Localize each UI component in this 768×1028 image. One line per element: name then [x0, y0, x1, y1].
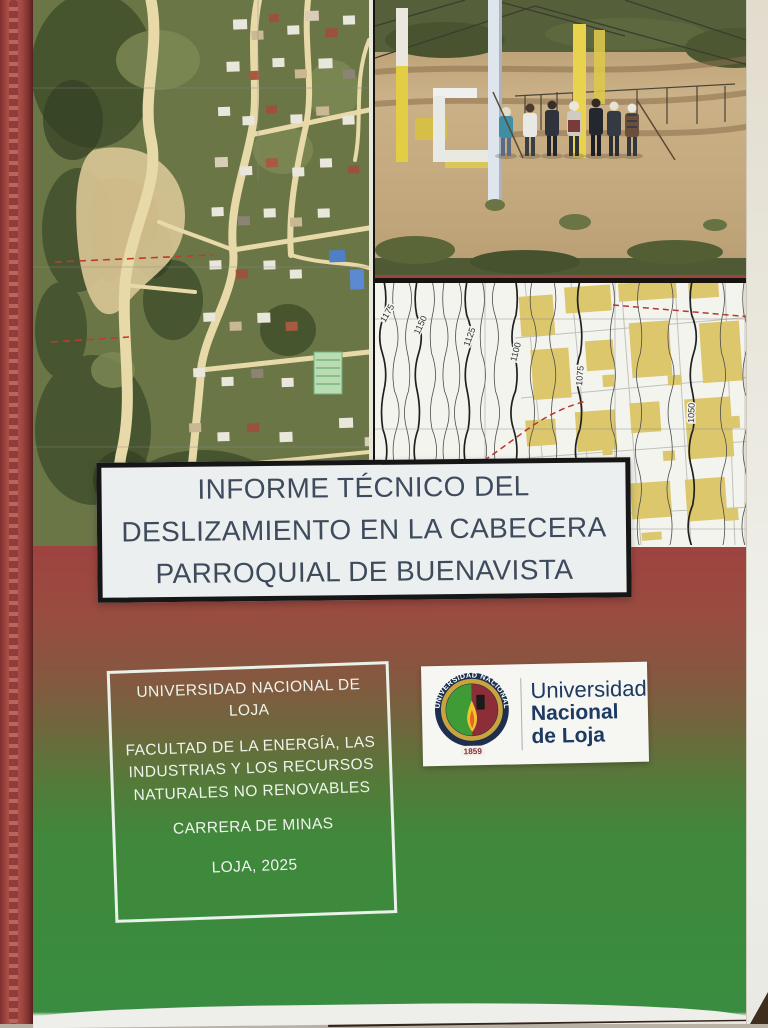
wordmark-line-1: Universidad	[530, 677, 647, 703]
institution-box: UNIVERSIDAD NACIONAL DE LOJA FACULTAD DE…	[107, 661, 398, 923]
svg-text:1075: 1075	[574, 365, 586, 386]
title-line-3: PARROQUIAL DE BUENAVISTA	[155, 549, 573, 595]
unl-wordmark: Universidad Nacional de Loja	[530, 677, 648, 749]
page-edge-right	[746, 0, 768, 1024]
unl-logo-plate: UNIVERSIDAD NACIONAL DE LOJA 1859 Univer…	[421, 662, 649, 767]
site-photo-illustration	[375, 0, 752, 275]
photographed-report-cover: { "cover": { "title_lines": [ "INFORME T…	[0, 0, 768, 1024]
title-line-2: DESLIZAMIENTO EN LA CABECERA	[121, 506, 607, 553]
city-year: LOJA, 2025	[128, 851, 381, 882]
field-site-photo	[373, 0, 754, 281]
binder-spine	[0, 0, 33, 1024]
market-building	[314, 352, 342, 394]
wordmark-line-3: de Loja	[531, 724, 648, 749]
logo-divider	[520, 678, 523, 750]
svg-text:1050: 1050	[686, 403, 697, 423]
university-name: UNIVERSIDAD NACIONAL DE LOJA	[136, 674, 362, 727]
binder-stitching	[9, 0, 18, 1024]
unl-seal-icon: UNIVERSIDAD NACIONAL DE LOJA 1859	[424, 666, 520, 764]
faculty-name: FACULTAD DE LA ENERGÍA, LAS INDUSTRIAS Y…	[124, 732, 378, 808]
seal-year: 1859	[463, 746, 482, 756]
title-box: INFORME TÉCNICO DEL DESLIZAMIENTO EN LA …	[96, 457, 631, 603]
title-line-1: INFORME TÉCNICO DEL	[197, 465, 530, 510]
wordmark-line-2: Nacional	[531, 701, 648, 726]
report-cover-page: 1175 1150 1125 1100 1075 1050 INFORME TÉ…	[33, 0, 752, 1024]
career-name: CARRERA DE MINAS	[127, 812, 380, 843]
